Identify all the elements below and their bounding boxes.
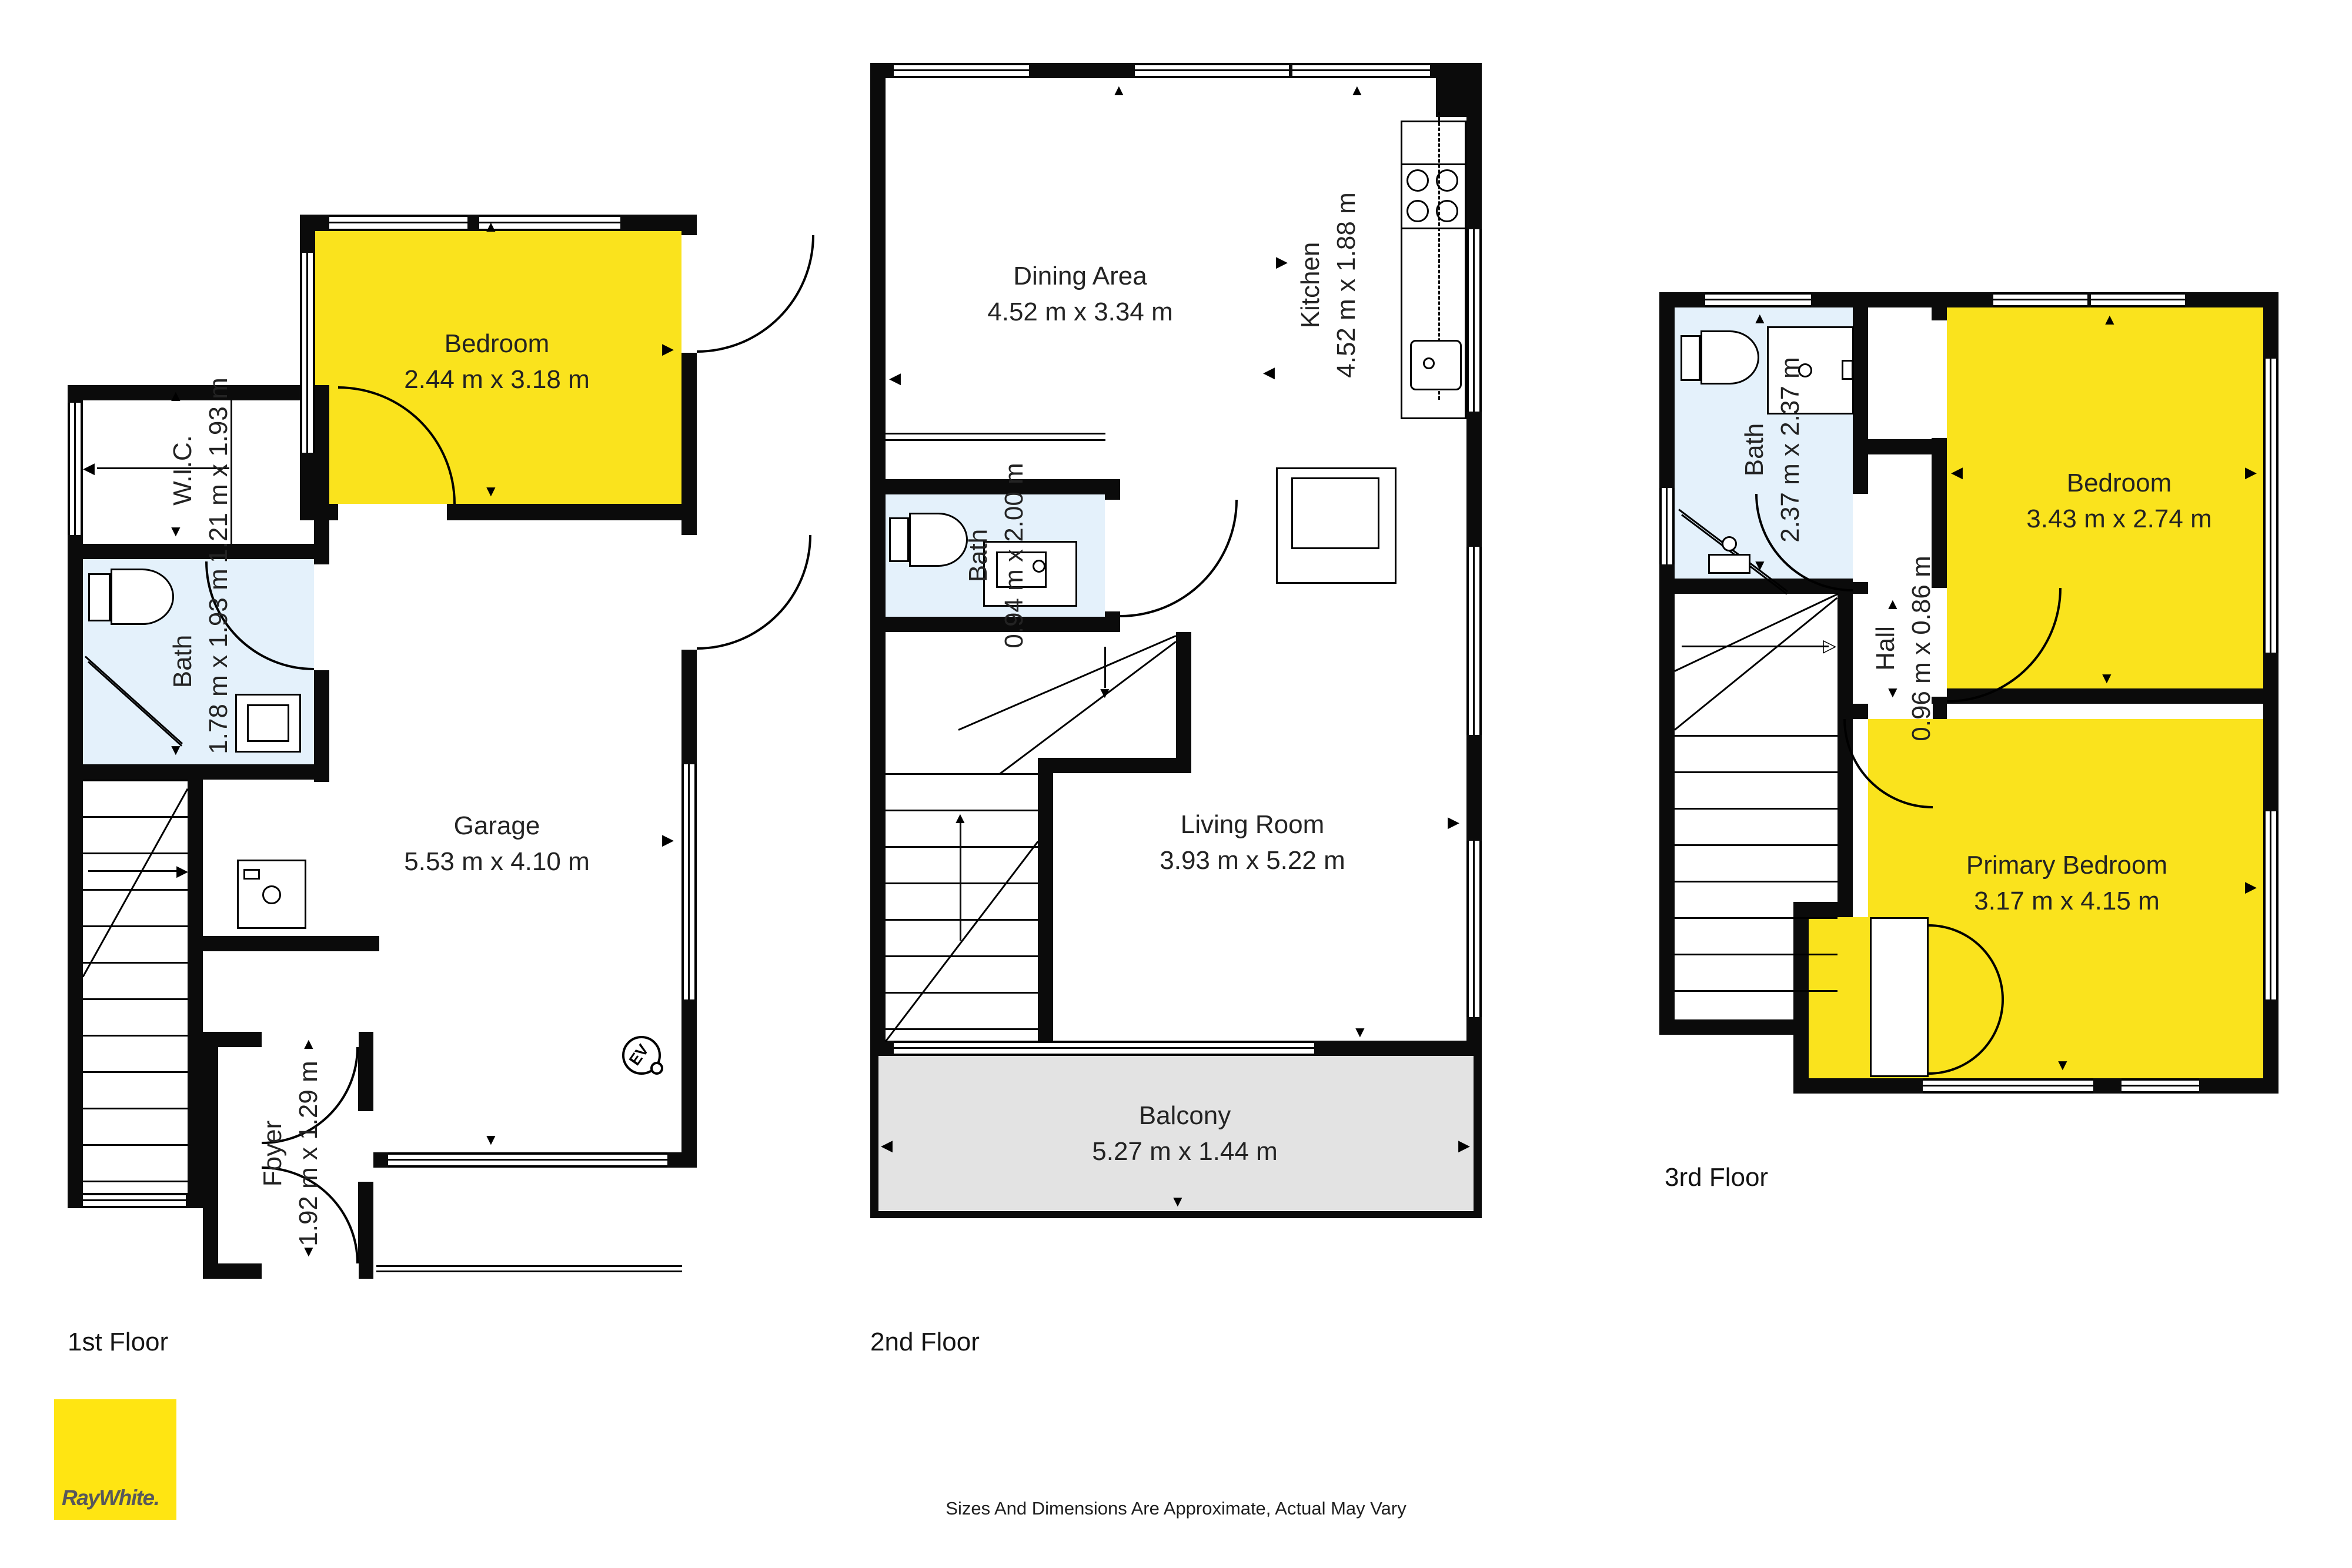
- floor-plan-sheet: EV Bedroom 2.44 m x 3.18 m W.I.C. 1.21 m…: [0, 0, 2352, 1568]
- wall: [1659, 1019, 1809, 1035]
- closet: [1870, 917, 1929, 1077]
- room-name: Hall: [1868, 543, 1904, 754]
- toilet-icon: [1681, 335, 1700, 381]
- wall: [1659, 292, 1675, 1035]
- window: [2263, 811, 2278, 999]
- dim-arrow: [1951, 464, 1963, 480]
- room-name: Bedroom: [1972, 466, 2266, 502]
- closet-opening: [1932, 320, 1947, 438]
- room-label-bath: Bath 2.37 m x 2.37 m: [1737, 326, 1803, 573]
- window: [1705, 292, 1811, 307]
- room-dims: 3.17 m x 4.15 m: [1890, 884, 2243, 920]
- pedestal-sink-icon: [1722, 536, 1737, 551]
- room-dims: 2.37 m x 2.37 m: [1773, 326, 1809, 573]
- dim-arrow: [1885, 684, 1900, 700]
- wall: [1853, 439, 1947, 454]
- window: [1923, 1078, 2093, 1094]
- floor-plan-3: Bath 2.37 m x 2.37 m Bedroom 3.43 m x 2.…: [0, 0, 2352, 1568]
- room-name: Primary Bedroom: [1890, 848, 2243, 884]
- dim-arrow: [2102, 312, 2117, 327]
- room-dims: 3.43 m x 2.74 m: [1972, 502, 2266, 537]
- door-opening: [1853, 494, 1868, 582]
- floor-label-3rd: 3rd Floor: [1665, 1163, 1768, 1192]
- stair-line: [1674, 597, 1837, 731]
- dim-arrow: [2245, 879, 2257, 894]
- stair-direction-line: [1682, 646, 1829, 647]
- stair-line: [1674, 593, 1838, 672]
- wall: [1837, 594, 1853, 917]
- dim-arrow: [1752, 310, 1768, 326]
- room-dims: 0.96 m x 0.86 m: [1904, 543, 1940, 754]
- room-label-hall: Hall 0.96 m x 0.86 m: [1868, 543, 1934, 754]
- window: [2122, 1078, 2199, 1094]
- room-label-bedroom: Bedroom 3.43 m x 2.74 m: [1972, 466, 2266, 537]
- dim-arrow: [2055, 1057, 2070, 1072]
- window: [1659, 488, 1675, 564]
- disclaimer-text: Sizes And Dimensions Are Approximate, Ac…: [0, 1498, 2352, 1519]
- stair-direction-arrow: [1823, 637, 1836, 655]
- dim-arrow: [2099, 670, 2114, 686]
- room-name: Bath: [1737, 326, 1773, 573]
- dim-arrow: [2245, 464, 2257, 480]
- stairs: [1675, 735, 1837, 1019]
- window: [1993, 292, 2087, 307]
- room-label-primary: Primary Bedroom 3.17 m x 4.15 m: [1890, 848, 2243, 919]
- dim-arrow: [1752, 557, 1768, 573]
- dim-arrow: [1885, 596, 1900, 611]
- window: [2091, 292, 2185, 307]
- vanity-tap-icon: [1842, 360, 1853, 380]
